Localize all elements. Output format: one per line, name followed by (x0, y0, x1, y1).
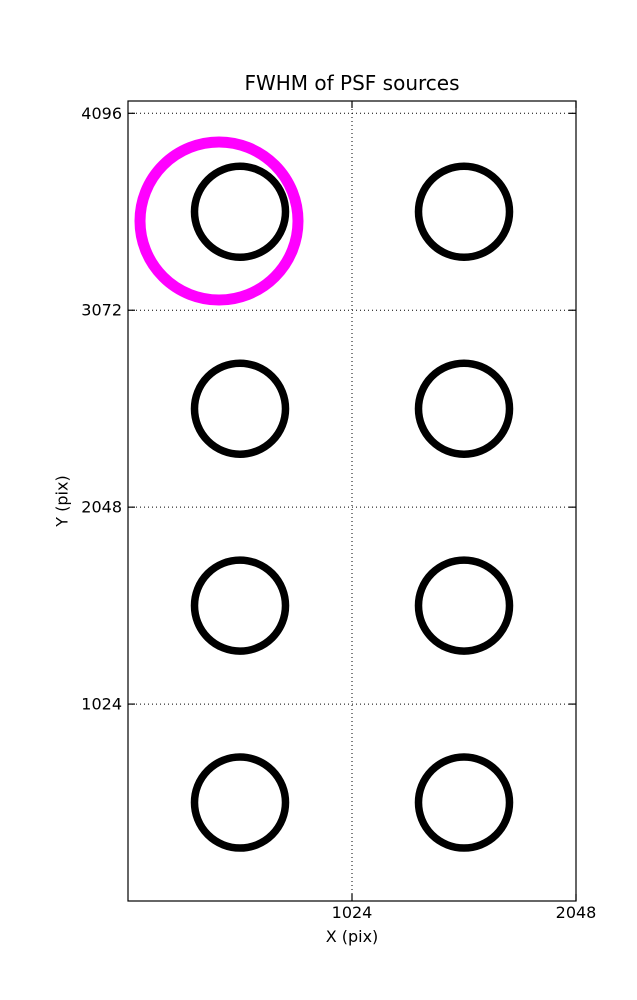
y-tick-label: 1024 (81, 695, 122, 714)
psf-source-marker (195, 560, 286, 651)
psf-source-marker (419, 757, 510, 848)
psf-source-marker (419, 363, 510, 454)
psf-source-marker (419, 166, 510, 257)
y-tick-label: 3072 (81, 301, 122, 320)
x-tick-label: 1024 (332, 903, 373, 922)
x-tick-label: 2048 (556, 903, 597, 922)
psf-source-marker (195, 363, 286, 454)
plot-area: 102420483072409610242048 (0, 0, 637, 1000)
y-tick-label: 4096 (81, 104, 122, 123)
y-tick-label: 2048 (81, 498, 122, 517)
psf-source-marker (195, 757, 286, 848)
highlight-marker (140, 142, 298, 300)
psf-source-marker (195, 166, 286, 257)
psf-source-marker (419, 560, 510, 651)
figure: FWHM of PSF sources Y (pix) X (pix) 1024… (0, 0, 637, 1000)
